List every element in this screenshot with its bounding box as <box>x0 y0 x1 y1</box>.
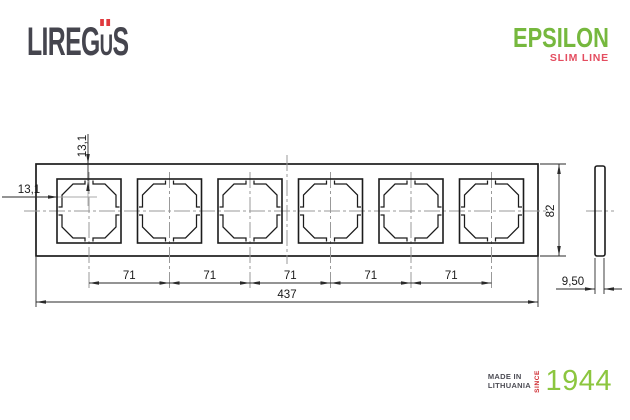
dim-text-depth: 9,50 <box>562 276 584 288</box>
made-in-text: MADE IN LITHUANIA <box>488 373 531 390</box>
dim-total-width: 437 <box>36 257 538 307</box>
dim-text-total-width: 437 <box>277 289 296 301</box>
product-drawing-page: LIREGUS EPSILON SLIM LINE <box>0 0 630 420</box>
dim-text-offset-top: 13,1 <box>77 135 89 157</box>
dim-text-pitch-3: 71 <box>284 270 297 282</box>
technical-drawing: 13,1 13,1 71 <box>0 0 630 420</box>
dim-text-pitch-2: 71 <box>203 270 216 282</box>
dim-depth: 9,50 <box>556 258 622 294</box>
dim-height: 82 <box>540 164 566 256</box>
made-in-line2: LITHUANIA <box>488 382 531 391</box>
dim-text-height: 82 <box>545 205 557 218</box>
dim-text-pitch-1: 71 <box>123 270 136 282</box>
centerlines <box>24 155 614 288</box>
dim-edge-offset-left: 13,1 <box>2 184 97 199</box>
dim-edge-offset-top: 13,1 <box>77 134 90 206</box>
dim-text-pitch-4: 71 <box>364 270 377 282</box>
since-label: SINCE <box>535 370 542 393</box>
dim-pitch-row: 71 71 71 71 71 <box>89 270 492 285</box>
dim-text-offset-left: 13,1 <box>18 184 40 196</box>
made-in-badge: MADE IN LITHUANIA SINCE 1944 <box>488 367 612 396</box>
dim-text-pitch-5: 71 <box>445 270 458 282</box>
founding-year: 1944 <box>545 367 612 396</box>
